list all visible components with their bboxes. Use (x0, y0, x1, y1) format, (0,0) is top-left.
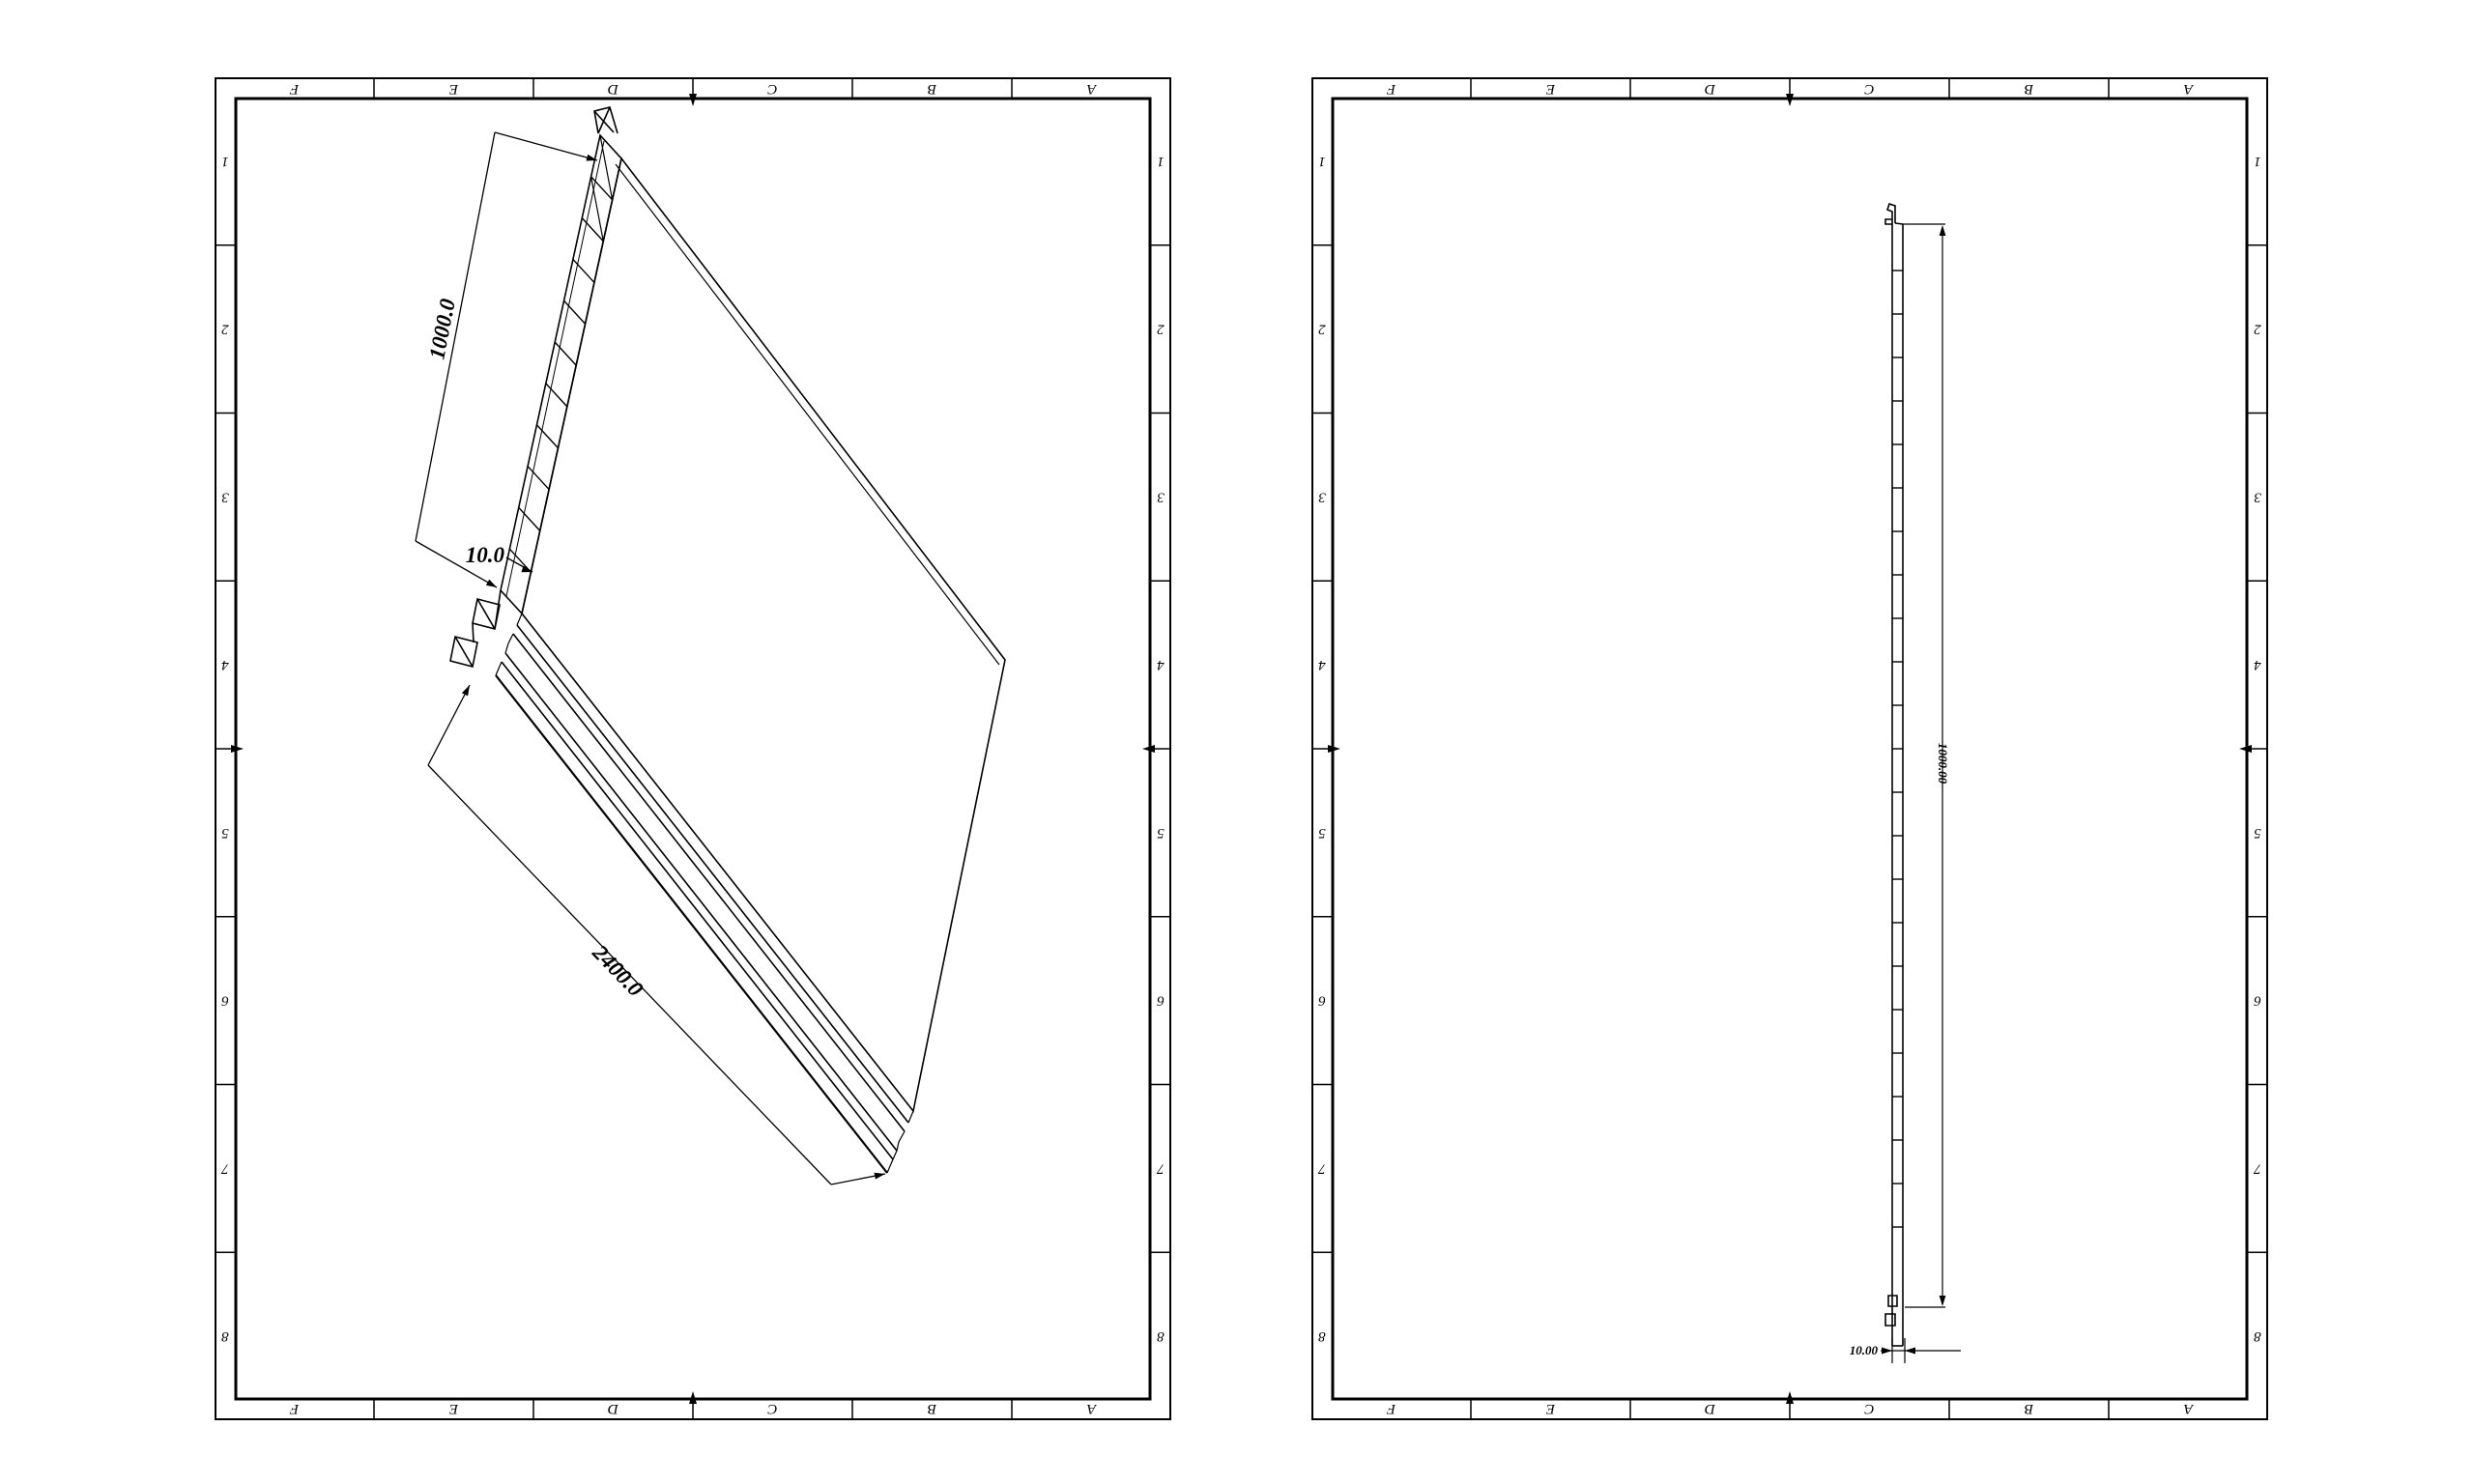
zone-label: 6 (221, 993, 229, 1009)
zone-label: 1 (2254, 154, 2261, 169)
panel-top-face-inner-edge (616, 164, 999, 665)
zone-label: B (928, 1401, 936, 1416)
panel-side-edge-lines (496, 614, 913, 1173)
panel-rib-line (528, 467, 549, 490)
dim-width-1000: 1000.0 (416, 132, 597, 587)
dim-thickness-10: 10.00 (1850, 1338, 1961, 1363)
arrowhead (1940, 225, 1946, 236)
dimensions-right-sheet: 1000.00 10.00 (1850, 224, 1961, 1363)
arrowhead (462, 685, 470, 696)
panel-isometric-view (450, 107, 1005, 1173)
zone-label: 7 (220, 1160, 229, 1176)
panel-rib-line (536, 425, 558, 448)
inner-border (236, 99, 1150, 1399)
zone-label: A (2183, 1401, 2194, 1416)
zone-label: D (608, 1401, 619, 1416)
dim-width-label: 1000.0 (424, 297, 460, 361)
dimension-line (416, 132, 495, 541)
zone-label: B (2025, 81, 2033, 97)
zone-label: E (1546, 1401, 1556, 1416)
dim-thickness-label: 10.0 (466, 543, 505, 567)
zone-label: C (1864, 1401, 1875, 1416)
zone-label: 7 (2253, 1160, 2261, 1176)
zone-label: B (2025, 1401, 2033, 1416)
extension-line (428, 685, 470, 765)
dim-width-1000: 1000.00 (1903, 224, 1950, 1307)
zone-label: 8 (221, 1328, 229, 1344)
zone-label: 3 (2254, 489, 2262, 504)
zone-label: 1 (1318, 154, 1326, 169)
dim-thickness-10: 10.0 (466, 543, 532, 572)
zone-label: C (767, 81, 778, 97)
dim-length-2400: 2400.0 (428, 685, 885, 1184)
side-line-caps (496, 614, 913, 1173)
panel-bottom-hooks (450, 590, 501, 667)
zone-label: 2 (221, 322, 229, 337)
zone-label: 5 (2254, 825, 2261, 841)
zone-label: D (608, 81, 619, 97)
drawing-sheet-side-view: FEDCBAFEDCBA1234567812345678 1000.00 (1311, 77, 2268, 1420)
panel-rib-lines (1892, 271, 1903, 1227)
zone-label: 1 (221, 154, 229, 169)
zone-label: 5 (1157, 825, 1165, 841)
zone-label: 6 (1318, 993, 1326, 1009)
zone-label: 8 (2254, 1328, 2261, 1344)
zone-label: E (449, 1401, 459, 1416)
zone-label: 6 (1157, 993, 1165, 1009)
zone-label: A (1086, 1401, 1097, 1416)
zone-label: 3 (221, 489, 230, 504)
inner-border (1333, 99, 2247, 1399)
dim-width-label: 1000.00 (1936, 743, 1950, 785)
zone-label: F (1386, 81, 1396, 97)
zone-label: 3 (1318, 489, 1327, 504)
arrowhead (486, 580, 497, 587)
zone-label: F (1386, 1401, 1396, 1416)
top-hook (1885, 204, 1895, 232)
zone-label: 1 (1157, 154, 1165, 169)
sheet-right-svg: FEDCBAFEDCBA1234567812345678 1000.00 (1311, 77, 2268, 1420)
zone-label: 2 (1318, 322, 1326, 337)
panel-top-tab (594, 107, 618, 133)
zone-label: F (289, 1401, 300, 1416)
arrowhead (1905, 1348, 1915, 1355)
zone-band: FEDCBAFEDCBA1234567812345678 (216, 78, 1170, 1419)
panel-end-ribs (509, 177, 612, 572)
zone-label: E (1546, 81, 1556, 97)
zone-label: 2 (1157, 322, 1165, 337)
sheet-left-svg: FEDCBAFEDCBA1234567812345678 (215, 77, 1171, 1420)
dim-length-label: 2400.0 (588, 940, 648, 1002)
zone-label: 7 (1156, 1160, 1165, 1176)
zone-label: A (1086, 81, 1097, 97)
bottom-hooks (1885, 1296, 1897, 1326)
zone-label: 4 (1318, 657, 1326, 672)
zone-label: 3 (1157, 489, 1165, 504)
zone-band: FEDCBAFEDCBA1234567812345678 (1312, 78, 2267, 1419)
zone-label: D (1705, 81, 1716, 97)
zone-label: 4 (1157, 657, 1165, 672)
sheet-frame: FEDCBAFEDCBA1234567812345678 (216, 78, 1170, 1419)
panel-side-view (1885, 204, 1903, 1346)
side-line (502, 662, 893, 1159)
zone-label: F (289, 81, 300, 97)
arrowhead (1882, 1348, 1892, 1355)
extension-line (495, 132, 597, 160)
zone-label: A (2183, 81, 2194, 97)
panel-end-face-inner-line (506, 141, 604, 596)
dimensions-left-sheet: 1000.0 2400.0 10.0 (416, 132, 885, 1184)
outer-border (1312, 78, 2267, 1419)
zone-label: B (928, 81, 936, 97)
zone-label: 4 (221, 657, 229, 672)
zone-label: C (767, 1401, 778, 1416)
panel-top-face (522, 158, 1005, 1111)
side-line-bottom (496, 675, 887, 1173)
zone-label: 7 (1317, 1160, 1326, 1176)
panel-rib-line (519, 507, 540, 530)
arrowhead (1940, 1296, 1946, 1306)
strip-top-edge (1895, 223, 1903, 224)
sheet-frame: FEDCBAFEDCBA1234567812345678 (1312, 78, 2267, 1419)
zone-label: 5 (1318, 825, 1326, 841)
page-background: { "paper_color": "#ffffff", "ink_color":… (0, 0, 2474, 1484)
zone-label: E (449, 81, 459, 97)
dim-thickness-label: 10.00 (1850, 1343, 1879, 1357)
outer-border (216, 78, 1170, 1419)
side-line (505, 653, 897, 1151)
zone-label: 8 (1318, 1328, 1326, 1344)
zone-label: 8 (1157, 1328, 1165, 1344)
zone-label: D (1705, 1401, 1716, 1416)
zone-label: 6 (2254, 993, 2261, 1009)
drawing-sheet-isometric: FEDCBAFEDCBA1234567812345678 (215, 77, 1171, 1420)
zone-label: 5 (221, 825, 229, 841)
zone-label: C (1864, 81, 1875, 97)
zone-label: 4 (2254, 657, 2261, 672)
zone-label: 2 (2254, 322, 2261, 337)
side-line (517, 625, 908, 1123)
panel-end-face (501, 135, 621, 614)
